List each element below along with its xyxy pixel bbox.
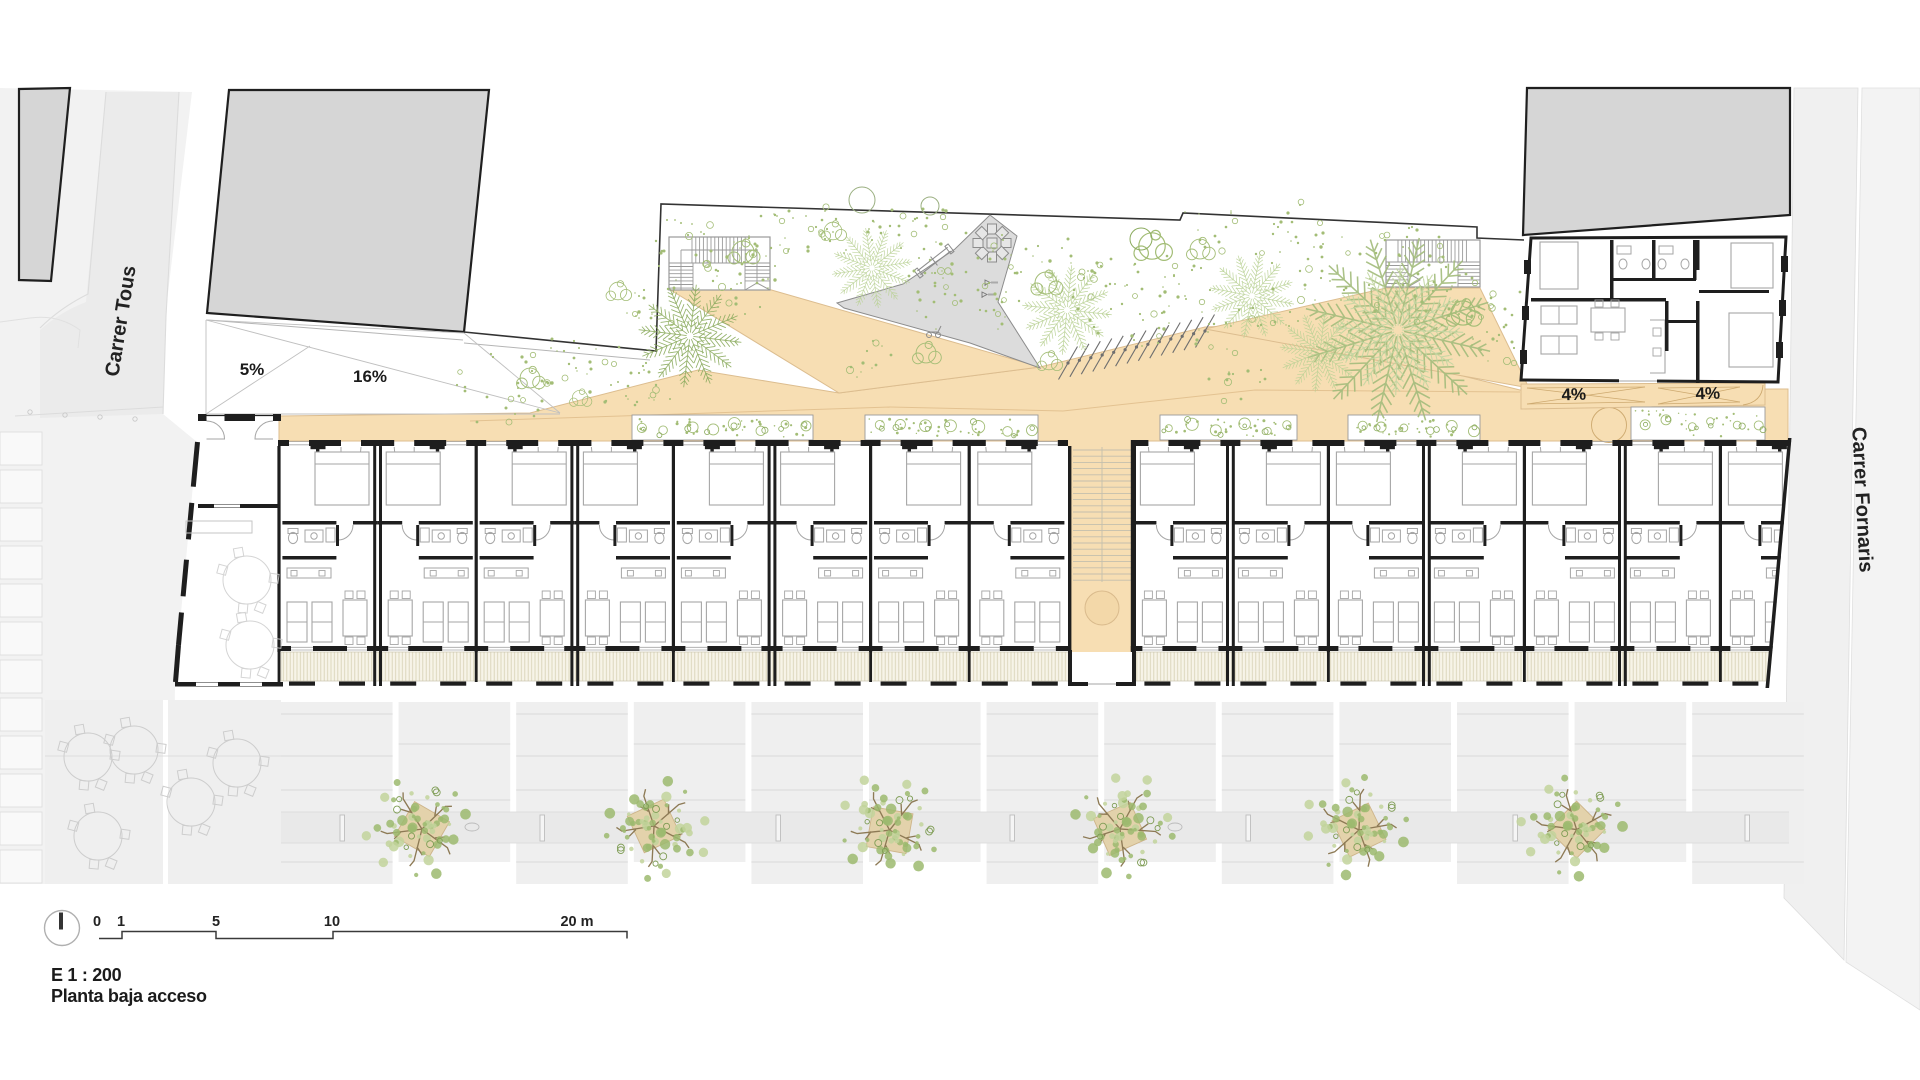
svg-text:Planta baja acceso: Planta baja acceso [51, 986, 207, 1006]
svg-text:20 m: 20 m [560, 914, 593, 930]
svg-text:0: 0 [93, 914, 101, 930]
svg-text:4%: 4% [1561, 385, 1586, 405]
svg-text:E 1 : 200: E 1 : 200 [51, 965, 122, 985]
svg-text:4%: 4% [1695, 384, 1720, 404]
svg-text:5%: 5% [240, 360, 265, 379]
svg-text:16%: 16% [353, 367, 387, 386]
svg-text:10: 10 [324, 914, 340, 930]
svg-text:1: 1 [117, 914, 125, 930]
svg-text:5: 5 [212, 914, 220, 930]
